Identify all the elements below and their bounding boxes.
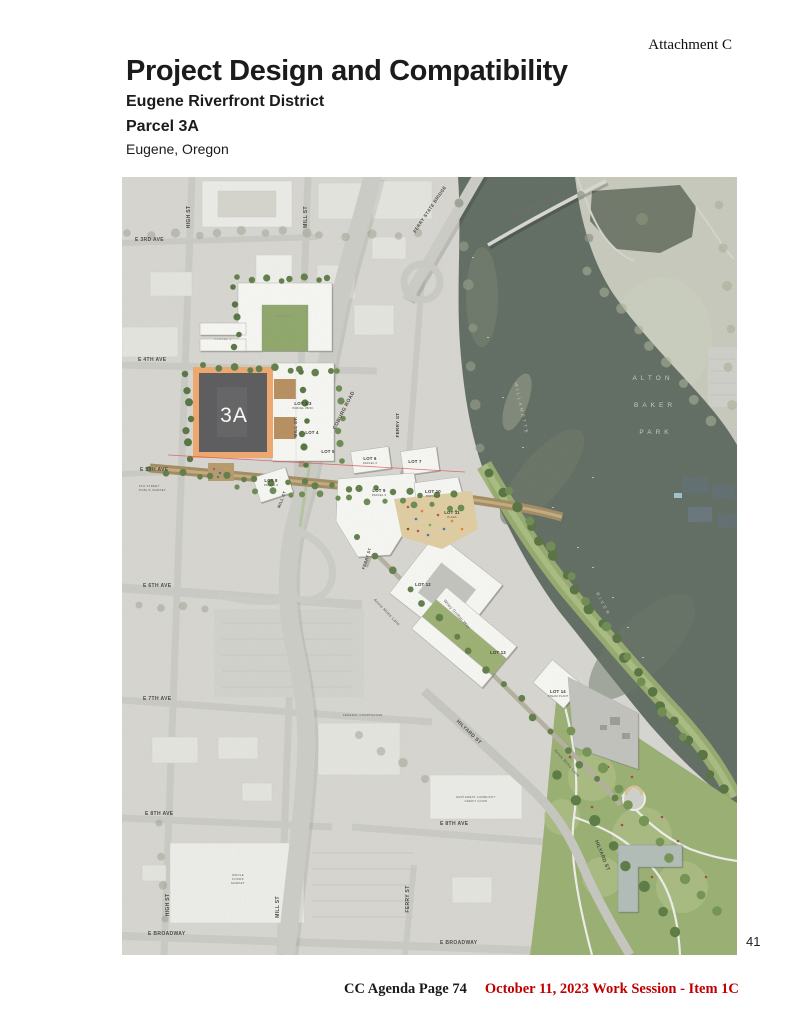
footer-agenda-page: CC Agenda Page 74 (344, 981, 467, 998)
parcel-subtitle: Parcel 3A (126, 118, 568, 136)
grain-overlay (122, 177, 737, 955)
page-title: Project Design and Compatibility (126, 56, 568, 86)
page-header: Project Design and Compatibility Eugene … (126, 56, 568, 157)
aerial-map-svg: E 3RD AVEHIGH STMILL STFERRY STATE BRIDG… (122, 177, 737, 955)
attachment-label: Attachment C (648, 37, 732, 54)
footer-work-session: October 11, 2023 Work Session - Item 1C (485, 981, 739, 998)
district-subtitle: Eugene Riverfront District (126, 93, 568, 111)
page-number: 41 (746, 934, 760, 949)
city-subtitle: Eugene, Oregon (126, 141, 568, 157)
page-footer: CC Agenda Page 74 October 11, 2023 Work … (344, 981, 739, 998)
document-page: Attachment C Project Design and Compatib… (0, 0, 800, 1035)
site-plan-aerial-map: E 3RD AVEHIGH STMILL STFERRY STATE BRIDG… (122, 177, 737, 955)
